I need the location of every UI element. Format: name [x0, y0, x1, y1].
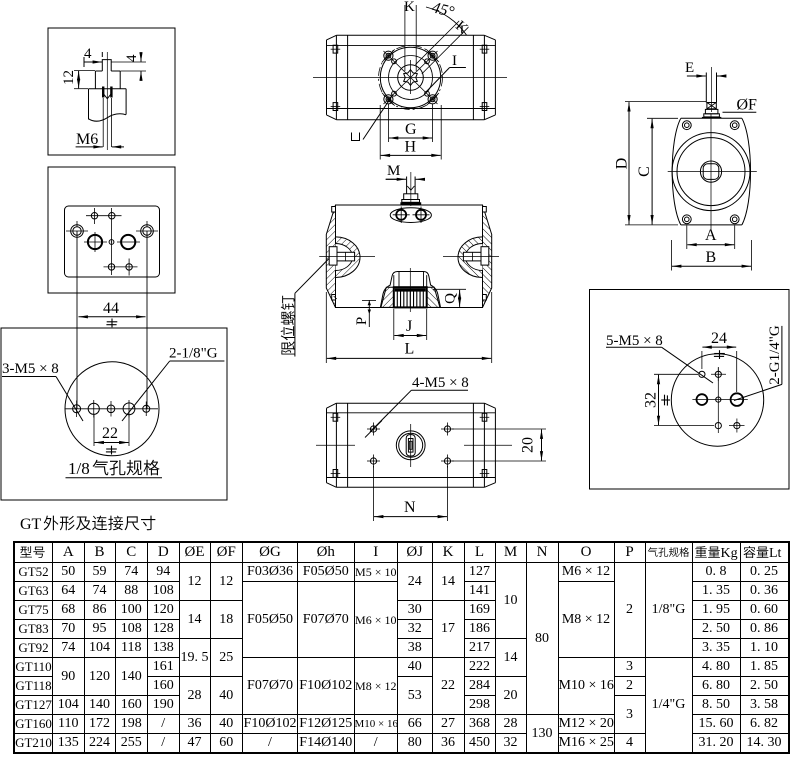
svg-text:44: 44: [103, 300, 119, 317]
svg-text:B: B: [706, 249, 717, 266]
svg-text:J: J: [406, 318, 412, 335]
svg-text:M: M: [387, 163, 400, 179]
svg-text:H: H: [405, 139, 417, 156]
svg-text:22: 22: [102, 425, 118, 442]
svg-text:I: I: [452, 53, 457, 69]
svg-text:D: D: [614, 158, 631, 170]
svg-text:ØF: ØF: [737, 97, 758, 114]
svg-text:20: 20: [520, 437, 537, 453]
svg-text:E: E: [685, 60, 694, 76]
svg-text:N: N: [404, 499, 416, 516]
svg-text:12: 12: [61, 70, 77, 85]
svg-text:2-G1/4"G: 2-G1/4"G: [767, 325, 783, 385]
svg-text:K: K: [404, 0, 415, 15]
svg-text:Q: Q: [443, 293, 459, 304]
svg-text:M6: M6: [76, 131, 98, 148]
svg-text:4: 4: [84, 46, 92, 62]
svg-text:5-M5 × 8: 5-M5 × 8: [606, 333, 663, 349]
svg-text:K: K: [452, 18, 471, 37]
svg-text:GT: GT: [20, 516, 42, 533]
svg-text:A: A: [705, 227, 717, 244]
svg-text:G: G: [405, 121, 417, 138]
svg-text:24: 24: [711, 330, 727, 347]
svg-text:45°: 45°: [430, 0, 456, 21]
svg-text:L: L: [405, 341, 415, 358]
svg-text:C: C: [636, 166, 653, 177]
svg-text:32: 32: [643, 392, 660, 408]
svg-text:P: P: [354, 317, 370, 325]
svg-text:1/8: 1/8: [68, 459, 90, 478]
svg-text:4-M5 × 8: 4-M5 × 8: [412, 375, 469, 391]
svg-text:2-1/8"G: 2-1/8"G: [169, 346, 218, 362]
svg-text:3-M5 × 8: 3-M5 × 8: [2, 361, 59, 377]
svg-text:4: 4: [124, 54, 140, 62]
